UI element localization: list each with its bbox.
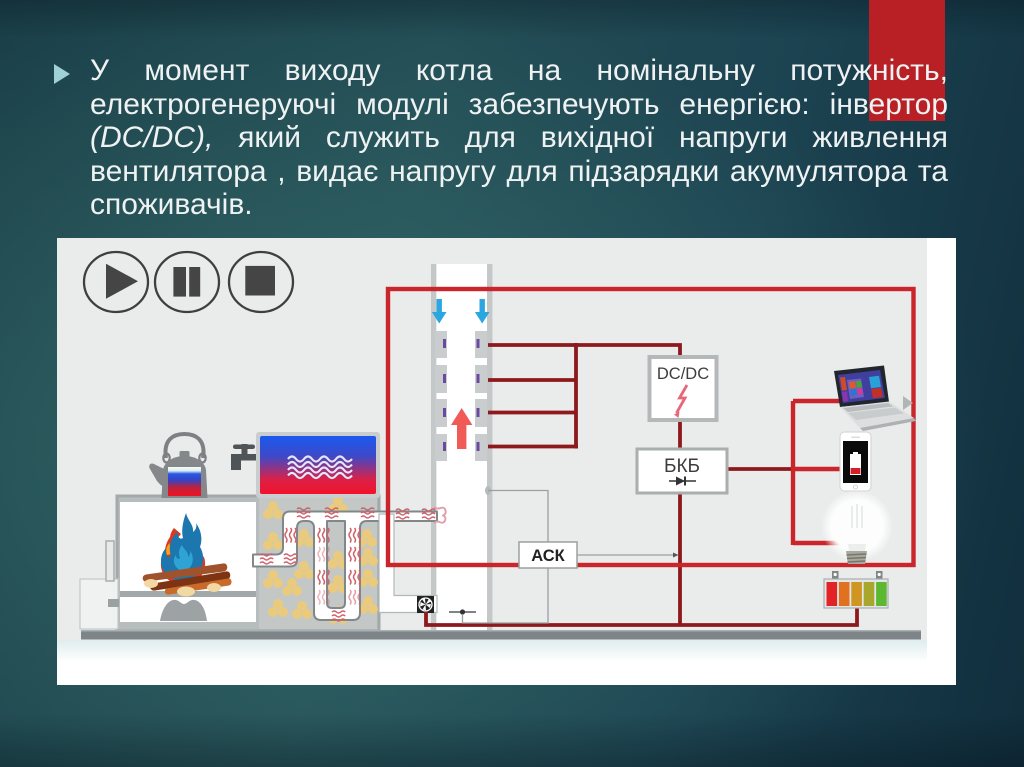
svg-text:DC/DC: DC/DC bbox=[657, 365, 709, 383]
svg-text:БКБ: БКБ bbox=[664, 456, 700, 477]
svg-text:АСК: АСК bbox=[531, 547, 565, 565]
